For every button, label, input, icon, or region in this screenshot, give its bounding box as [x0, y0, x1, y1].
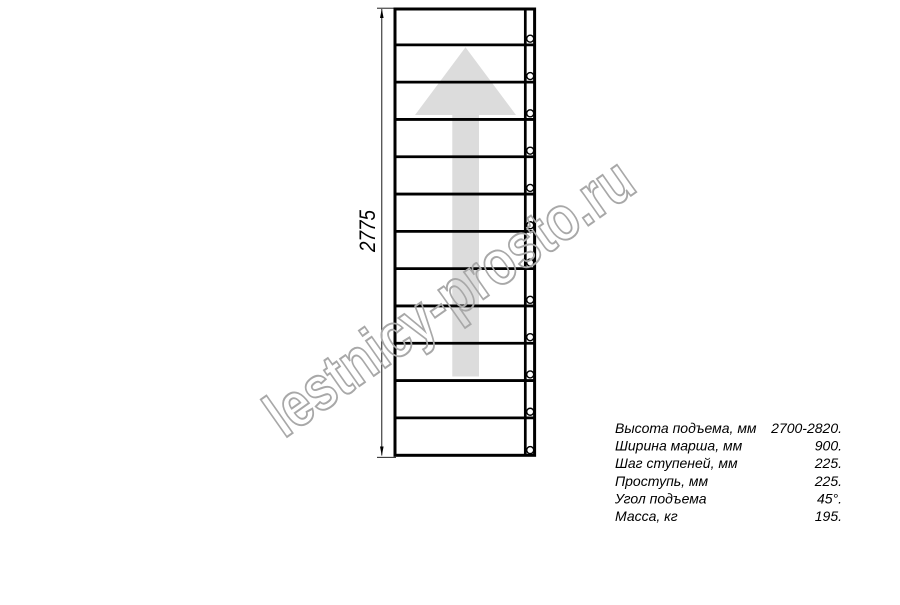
- svg-text:Ширина марша, мм: Ширина марша, мм: [615, 438, 743, 454]
- svg-text:2700-2820.: 2700-2820.: [770, 420, 842, 436]
- svg-text:225.: 225.: [814, 455, 842, 471]
- svg-text:Угол подъема: Угол подъема: [614, 490, 707, 506]
- svg-text:Высота подъема, мм: Высота подъема, мм: [615, 420, 757, 436]
- svg-text:2775: 2775: [355, 209, 380, 253]
- svg-text:Шаг ступеней, мм: Шаг ступеней, мм: [615, 455, 738, 471]
- svg-text:195.: 195.: [815, 508, 842, 524]
- svg-text:225.: 225.: [814, 473, 842, 489]
- svg-text:900.: 900.: [815, 438, 842, 454]
- svg-text:Масса, кг: Масса, кг: [615, 508, 678, 524]
- svg-text:Проступь, мм: Проступь, мм: [615, 473, 709, 489]
- svg-text:45°.: 45°.: [817, 490, 842, 506]
